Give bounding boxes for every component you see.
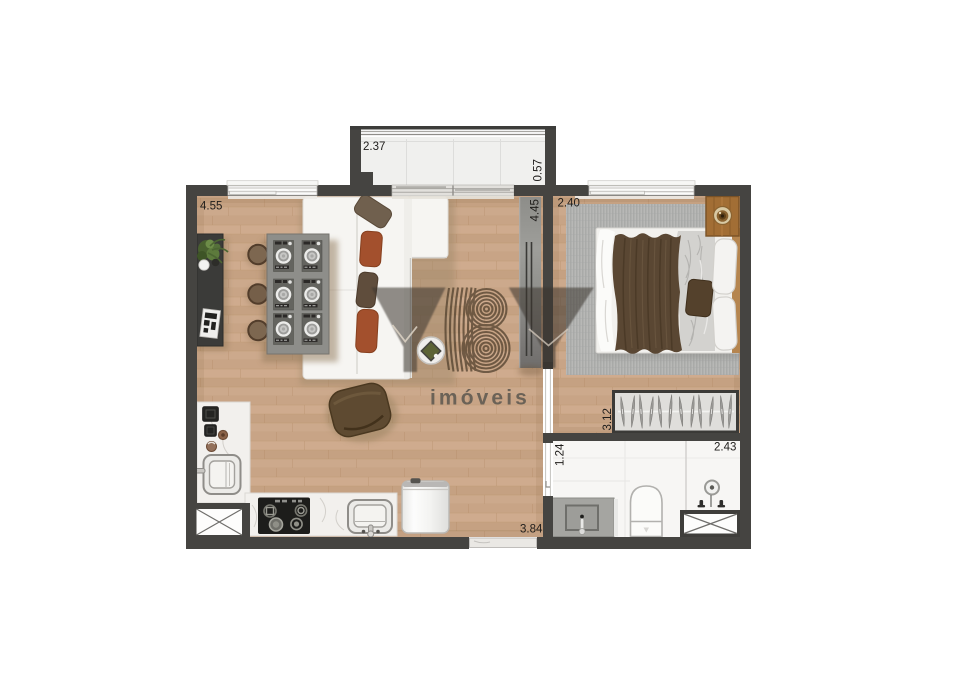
svg-text:1.24: 1.24: [555, 443, 567, 466]
svg-text:0.57: 0.57: [533, 159, 545, 181]
svg-text:3.84: 3.84: [520, 524, 543, 536]
svg-text:4.55: 4.55: [200, 201, 222, 213]
svg-text:2.43: 2.43: [714, 442, 736, 454]
svg-text:2.40: 2.40: [558, 198, 580, 210]
svg-text:imóveis: imóveis: [430, 387, 530, 410]
svg-text:3.12: 3.12: [602, 408, 614, 430]
svg-text:4.45: 4.45: [530, 199, 542, 221]
svg-text:2.37: 2.37: [363, 141, 385, 153]
